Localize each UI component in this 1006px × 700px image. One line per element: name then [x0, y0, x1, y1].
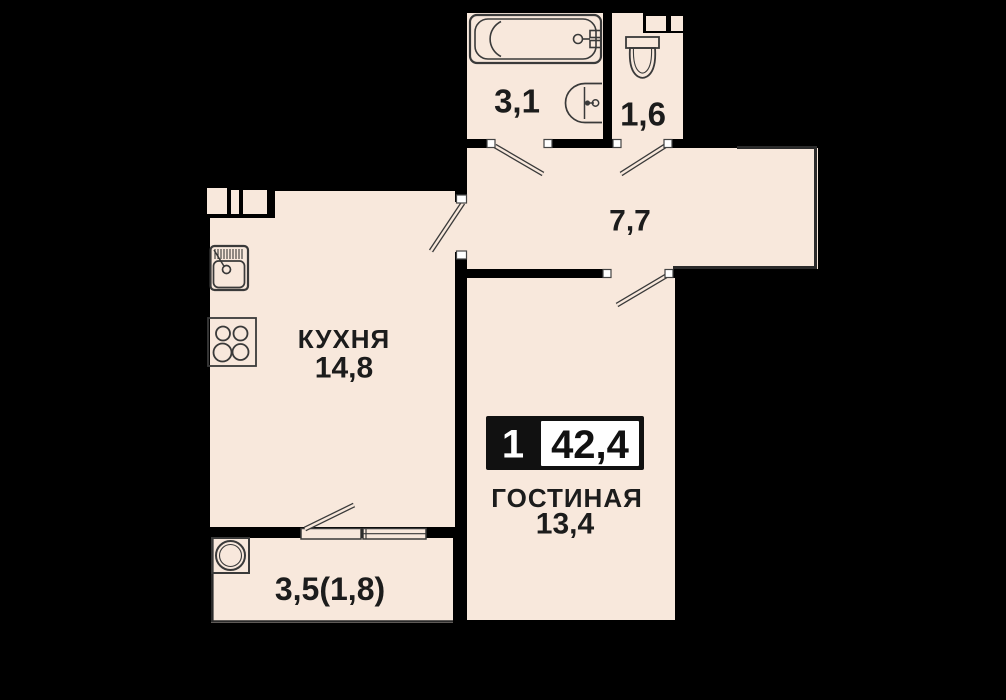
vent-shaft-kitchen-icon [207, 188, 267, 214]
floor-plan-canvas: 3,1 1,6 7,7 КУХНЯ 14,8 ГОСТИНАЯ 13,4 3,5… [0, 0, 1006, 700]
apartment-badge: 1 42,4 [486, 416, 644, 470]
living-area-label: 13,4 [536, 508, 595, 541]
balcony-door-window [301, 529, 426, 540]
door-post [487, 140, 495, 148]
door-post [665, 270, 673, 278]
vent-shaft-toilet-icon [646, 16, 683, 31]
badge-rooms-count: 1 [502, 423, 524, 467]
kitchen-name-label: КУХНЯ [298, 324, 391, 354]
toilet-area-label: 1,6 [620, 96, 666, 133]
door-post [457, 251, 467, 259]
hallway-area-label: 7,7 [609, 205, 651, 238]
badge-total-area: 42,4 [551, 423, 630, 467]
bathroom-area-label: 3,1 [494, 83, 540, 120]
door-post [664, 140, 672, 148]
balcony-area-label: 3,5(1,8) [275, 571, 385, 607]
door-post [457, 195, 467, 203]
balcony-door-frame [301, 529, 361, 540]
floor-plan: 3,1 1,6 7,7 КУХНЯ 14,8 ГОСТИНАЯ 13,4 3,5… [0, 0, 1006, 700]
door-post [544, 140, 552, 148]
door-post [603, 270, 611, 278]
room-bathroom-floor [467, 13, 603, 139]
kitchen-area-label: 14,8 [315, 352, 373, 385]
door-post [613, 140, 621, 148]
